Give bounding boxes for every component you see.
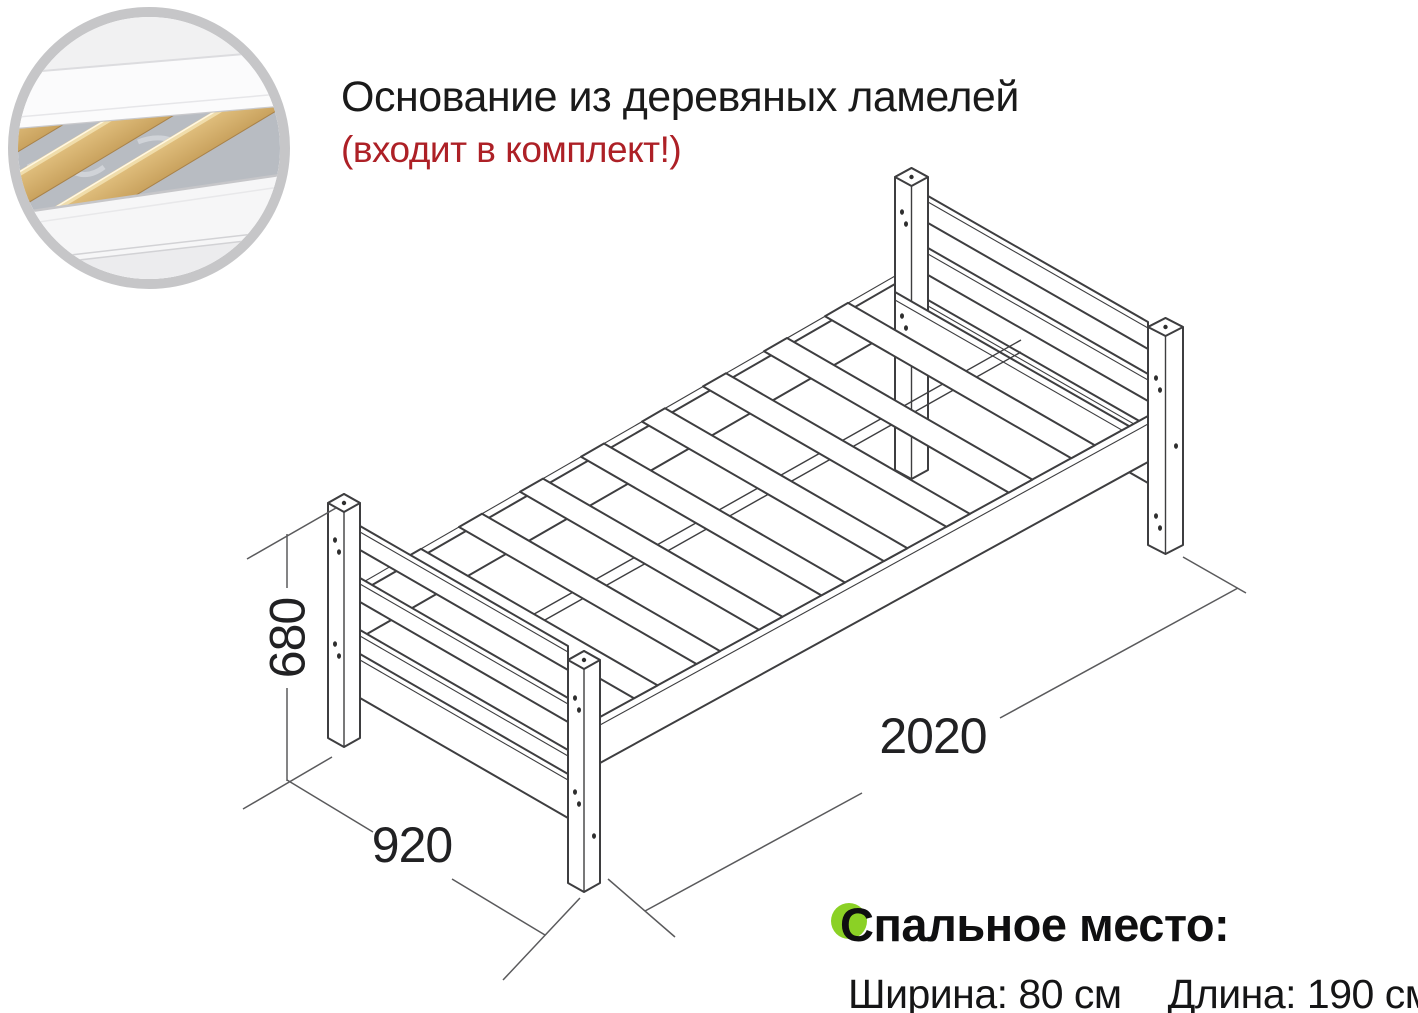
dimension-height-label: 680 [260, 598, 316, 678]
sleeping-area-block: Спальное место: [830, 897, 1229, 957]
sleeping-area-sizes: Ширина: 80 смДлина: 190 см [848, 971, 1418, 1013]
sleeping-length-label: Длина: 190 см [1168, 971, 1418, 1013]
bed-technical-drawing: 680 920 2020 [0, 0, 1418, 1013]
sleeping-width-label: Ширина: 80 см [848, 971, 1122, 1013]
infographic-root: Основание из деревяных ламелей (входит в… [0, 0, 1418, 1013]
dimension-width-label: 920 [372, 817, 452, 873]
sleeping-area-title: Спальное место: [840, 898, 1229, 951]
dimension-length-label: 2020 [879, 708, 986, 764]
